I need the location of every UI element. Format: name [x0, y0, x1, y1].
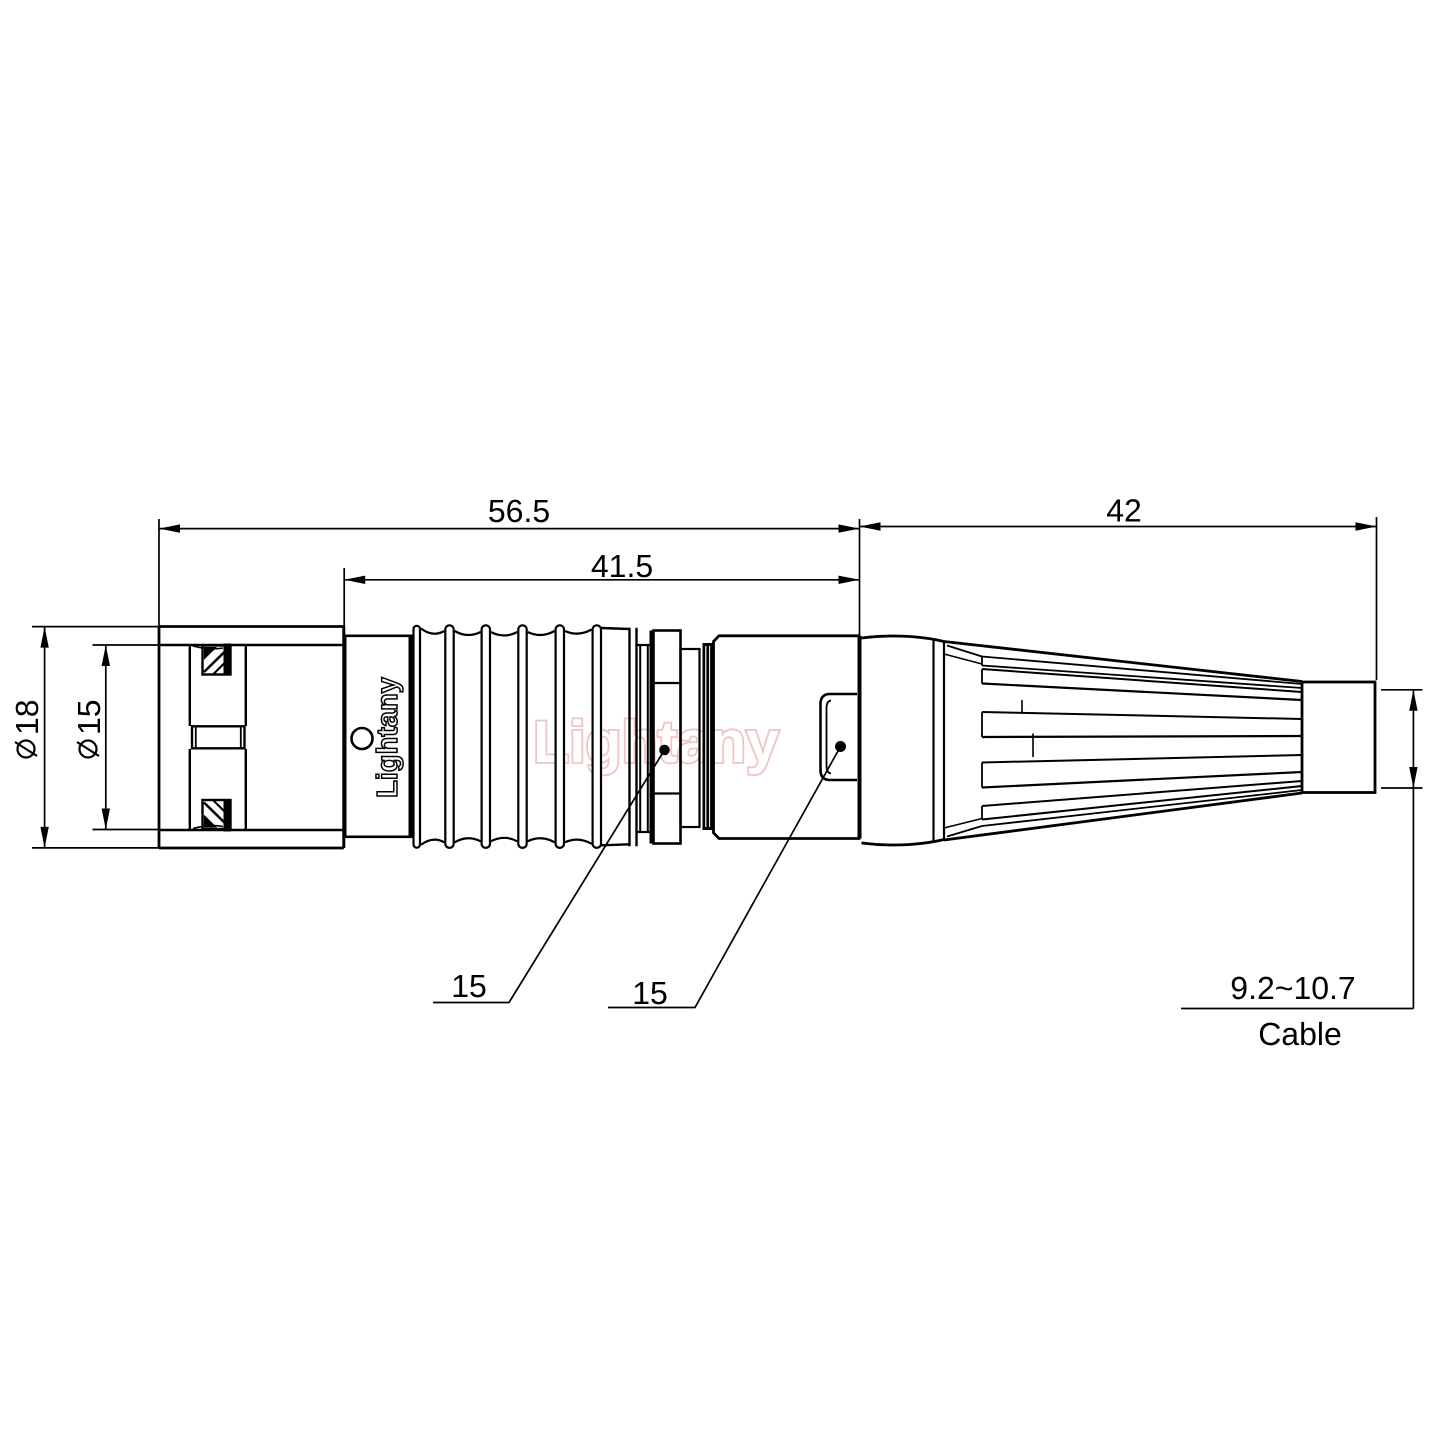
svg-text:42: 42 [1106, 493, 1142, 529]
svg-text:15: 15 [632, 975, 668, 1011]
svg-text:9.2~10.7: 9.2~10.7 [1230, 970, 1355, 1006]
svg-text:15: 15 [451, 968, 487, 1004]
svg-text:41.5: 41.5 [591, 548, 653, 584]
svg-text:18: 18 [9, 699, 45, 735]
svg-text:15: 15 [71, 699, 107, 735]
svg-text:Lightany: Lightany [372, 677, 404, 798]
svg-text:56.5: 56.5 [488, 493, 550, 529]
svg-text:Cable: Cable [1258, 1016, 1342, 1052]
